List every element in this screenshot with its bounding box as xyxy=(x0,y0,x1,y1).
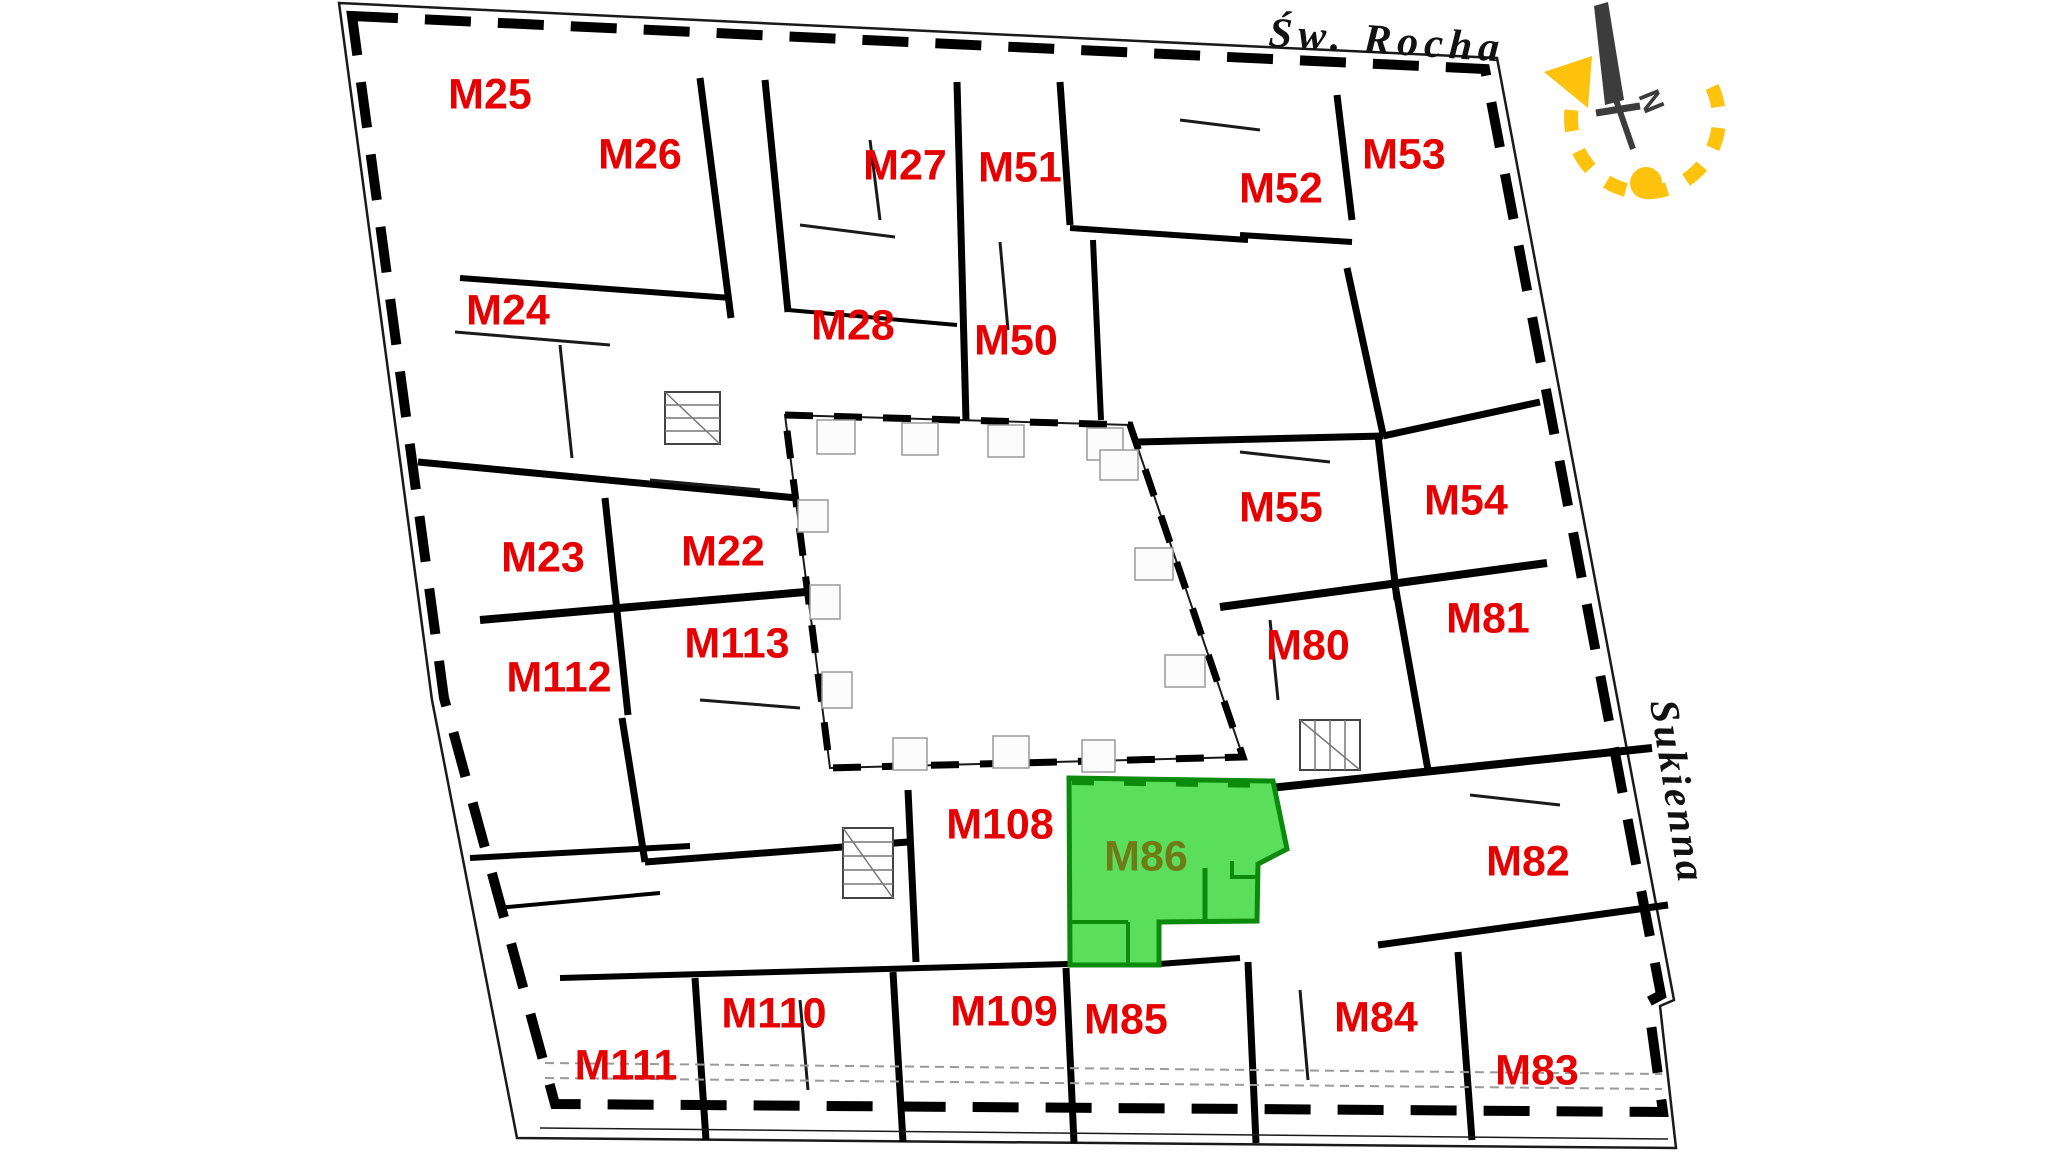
apartment-label-m109[interactable]: M109 xyxy=(950,987,1058,1035)
compass: N xyxy=(1544,2,1719,199)
apartment-label-m28[interactable]: M28 xyxy=(811,301,895,349)
apartment-label-m26[interactable]: M26 xyxy=(598,130,682,178)
apartment-label-m112[interactable]: M112 xyxy=(506,653,611,701)
apartment-label-m80[interactable]: M80 xyxy=(1266,621,1350,669)
apartment-label-m27[interactable]: M27 xyxy=(863,141,947,189)
apartment-label-m86[interactable]: M86 xyxy=(1104,832,1188,880)
north-label: N xyxy=(1632,85,1671,117)
sun-dot-icon xyxy=(1630,167,1662,199)
apartment-label-m52[interactable]: M52 xyxy=(1239,164,1323,212)
apartment-label-m85[interactable]: M85 xyxy=(1084,995,1168,1043)
apartment-label-m25[interactable]: M25 xyxy=(448,70,532,118)
north-needle-icon xyxy=(1594,2,1624,105)
apartment-label-m82[interactable]: M82 xyxy=(1486,837,1570,885)
apartment-label-m84[interactable]: M84 xyxy=(1334,993,1418,1041)
floor-plan-canvas: M25M26M27M51M52M53M24M28M50M23M22M55M54M… xyxy=(0,0,2048,1153)
street-label-right: Sukienna xyxy=(1641,696,1716,887)
staircase-top-left xyxy=(665,392,720,444)
apartment-label-m55[interactable]: M55 xyxy=(1239,483,1323,531)
apartment-label-m111[interactable]: M111 xyxy=(575,1041,678,1089)
apartment-label-m83[interactable]: M83 xyxy=(1495,1046,1579,1094)
apartment-label-m22[interactable]: M22 xyxy=(681,527,765,575)
apartment-label-m51[interactable]: M51 xyxy=(978,143,1062,191)
apartment-label-m81[interactable]: M81 xyxy=(1446,594,1530,642)
apartment-label-m54[interactable]: M54 xyxy=(1424,476,1508,524)
apartment-label-m108[interactable]: M108 xyxy=(946,800,1054,848)
apartment-label-m113[interactable]: M113 xyxy=(684,619,789,667)
staircase-right xyxy=(1300,720,1360,770)
apartment-label-m50[interactable]: M50 xyxy=(974,316,1058,364)
apartment-label-m23[interactable]: M23 xyxy=(501,533,585,581)
courtyard xyxy=(785,415,1243,772)
staircase-bottom xyxy=(843,828,893,898)
apartment-label-m24[interactable]: M24 xyxy=(466,286,550,334)
sun-arrowhead-icon xyxy=(1544,56,1592,108)
apartment-label-m110[interactable]: M110 xyxy=(721,989,826,1037)
floor-plan-page: M25M26M27M51M52M53M24M28M50M23M22M55M54M… xyxy=(0,0,2048,1153)
apartment-label-m53[interactable]: M53 xyxy=(1362,130,1446,178)
